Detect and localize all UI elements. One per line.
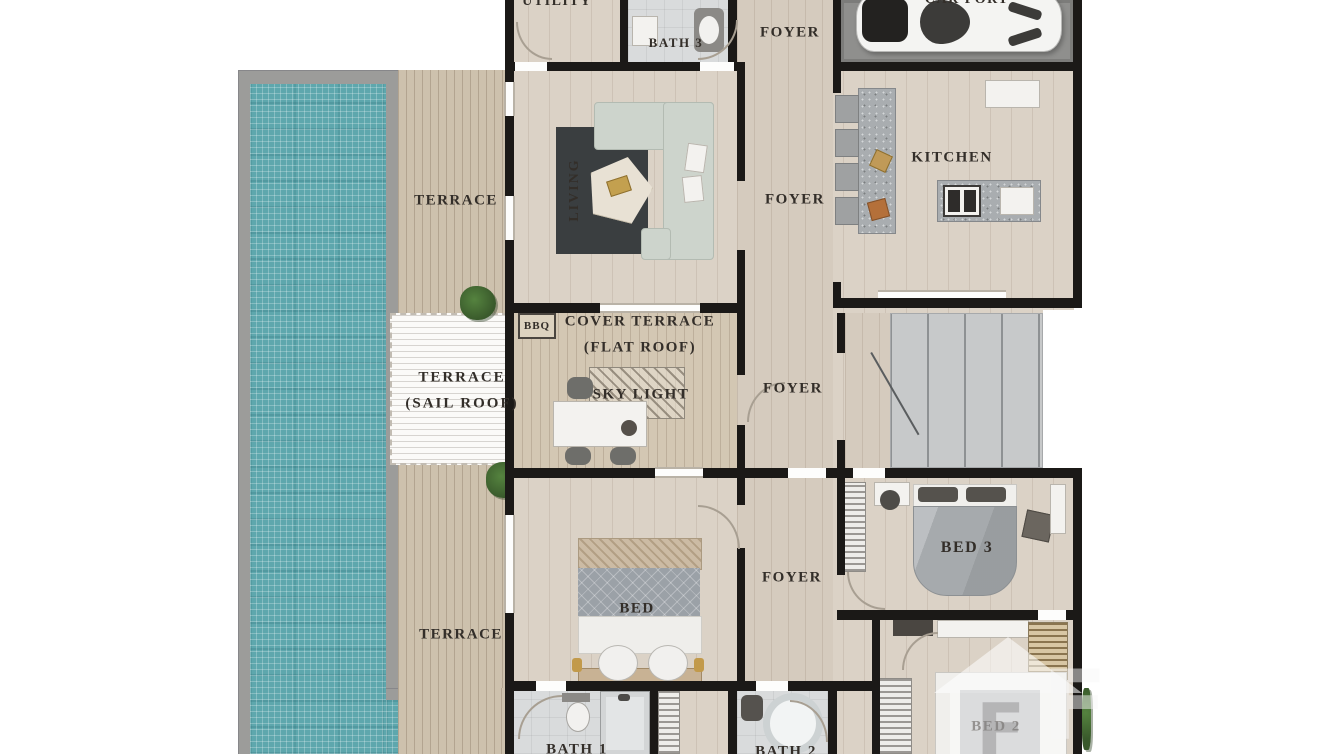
bath1-toilet [566, 702, 590, 732]
kitchen-stool [835, 197, 859, 225]
shelf [1050, 484, 1066, 534]
door-opening [788, 468, 826, 478]
room-label-foyer-mid: FOYER [763, 381, 823, 398]
bed-headboard-pillows [578, 538, 702, 570]
exterior-notch [1043, 310, 1103, 468]
refrigerator [985, 80, 1040, 108]
stair-landing-floor [845, 313, 890, 468]
sail-roof-terrace [390, 313, 508, 465]
foot-stool [648, 645, 688, 681]
foot-stool [598, 645, 638, 681]
bed-duvet [578, 616, 702, 654]
room-label-bed3: BED 3 [941, 539, 993, 557]
door-opening [536, 681, 566, 691]
window [504, 82, 515, 116]
watermark-letter-f2: F [1042, 658, 1108, 754]
sofa-pillow [682, 175, 705, 203]
dining-decor [621, 420, 637, 436]
wall [833, 71, 841, 93]
closet-counter [937, 620, 1029, 638]
stove-burner [948, 190, 960, 212]
dining-chair [565, 447, 591, 465]
wall [833, 0, 841, 62]
bed3-pillow [918, 487, 958, 502]
door-opening [1038, 610, 1066, 620]
room-label-living: LIVING [567, 158, 583, 221]
room-label-foyer-main: FOYER [765, 192, 825, 209]
label-cover-terrace: COVER TERRACE [565, 314, 716, 331]
door-opening [756, 681, 788, 691]
wall [837, 313, 845, 353]
car-roof [862, 0, 908, 42]
sofa-pillow [684, 143, 708, 174]
bath1-toilet-tank [562, 693, 590, 702]
room-label-kitchen: KITCHEN [911, 150, 992, 167]
room-label-bath3: BATH 3 [649, 35, 704, 51]
room-label-terrace-upper: TERRACE [414, 193, 498, 210]
wardrobe-louver [878, 678, 912, 754]
shower-head [618, 694, 630, 701]
sofa-chaise [641, 228, 671, 260]
stove-burner [964, 190, 976, 212]
kitchen-stool [835, 95, 859, 123]
window [504, 196, 515, 240]
bedside-lamp [694, 658, 704, 672]
wall [737, 548, 745, 691]
label-bbq: BBQ [524, 320, 550, 332]
bath2-toilet [741, 695, 763, 721]
wall [620, 0, 628, 64]
kitchen-stool [835, 163, 859, 191]
label-sky-light: SKY LIGHT [593, 387, 690, 404]
plant [460, 286, 496, 320]
label-flat-roof: (FLAT ROOF) [584, 340, 696, 357]
wall [737, 478, 745, 505]
room-label-foyer-lower: FOYER [762, 570, 822, 587]
wall [650, 691, 658, 754]
desk-chair [880, 490, 900, 510]
wall [833, 298, 1082, 308]
room-label-terrace-lower: TERRACE [419, 627, 503, 644]
wall [737, 313, 745, 375]
sliding-door [504, 515, 515, 613]
bed3-pillow [966, 487, 1006, 502]
label-terrace-sail-2: (SAIL ROOF) [405, 396, 518, 413]
room-label-carport: CAR PORT [925, 0, 1009, 8]
room-label-bed: BED [619, 601, 654, 618]
wall [1073, 0, 1082, 308]
bedside-lamp [572, 658, 582, 672]
floor-plan: UTILITY BATH 3 FOYER CAR PORT TERRACE LI… [0, 0, 1342, 754]
wall [737, 71, 745, 181]
room-label-bath2: BATH 2 [755, 744, 817, 754]
kitchen-sink [1000, 187, 1034, 215]
door-opening [700, 62, 734, 71]
corridor-wardrobe [658, 691, 680, 754]
watermark-letter-f1: F [976, 694, 1025, 754]
wall [828, 691, 837, 754]
room-label-utility: UTILITY [522, 0, 592, 10]
room-label-foyer-entry: FOYER [760, 25, 820, 42]
door-opening [853, 468, 885, 478]
dining-chair [610, 447, 636, 465]
room-label-bath1: BATH 1 [546, 742, 608, 754]
window [655, 467, 703, 478]
stairs [890, 313, 1043, 468]
wall [728, 691, 737, 754]
sliding-door [600, 303, 700, 313]
wall [837, 478, 845, 575]
door-opening [515, 62, 547, 71]
label-terrace-sail-1: TERRACE [418, 370, 505, 387]
dining-chair [567, 377, 593, 399]
swimming-pool [250, 84, 386, 754]
kitchen-stool [835, 129, 859, 157]
wall [833, 62, 1082, 71]
